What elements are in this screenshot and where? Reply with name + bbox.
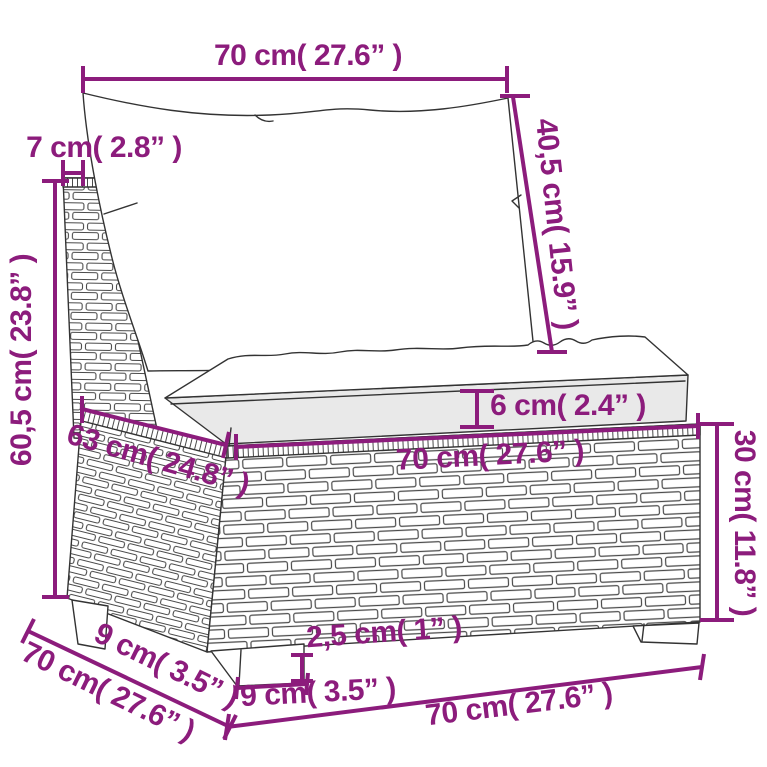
dim-label-total-height: 60,5 cm( 23.8” ) — [7, 254, 37, 466]
dim-label-back-cushion-width: 70 cm( 27.6” ) — [214, 41, 402, 71]
dim-label-back-panel-thickness: 7 cm( 2.8” ) — [26, 133, 182, 163]
dim-label-base-height: 30 cm( 11.8” ) — [729, 430, 759, 616]
dim-label-seat-cushion-thickness: 6 cm( 2.4” ) — [490, 391, 646, 421]
dim-line-total-height — [42, 181, 69, 597]
furniture-dimension-diagram: 70 cm( 27.6” ) 7 cm( 2.8” ) 40,5 cm( 15.… — [0, 0, 767, 767]
